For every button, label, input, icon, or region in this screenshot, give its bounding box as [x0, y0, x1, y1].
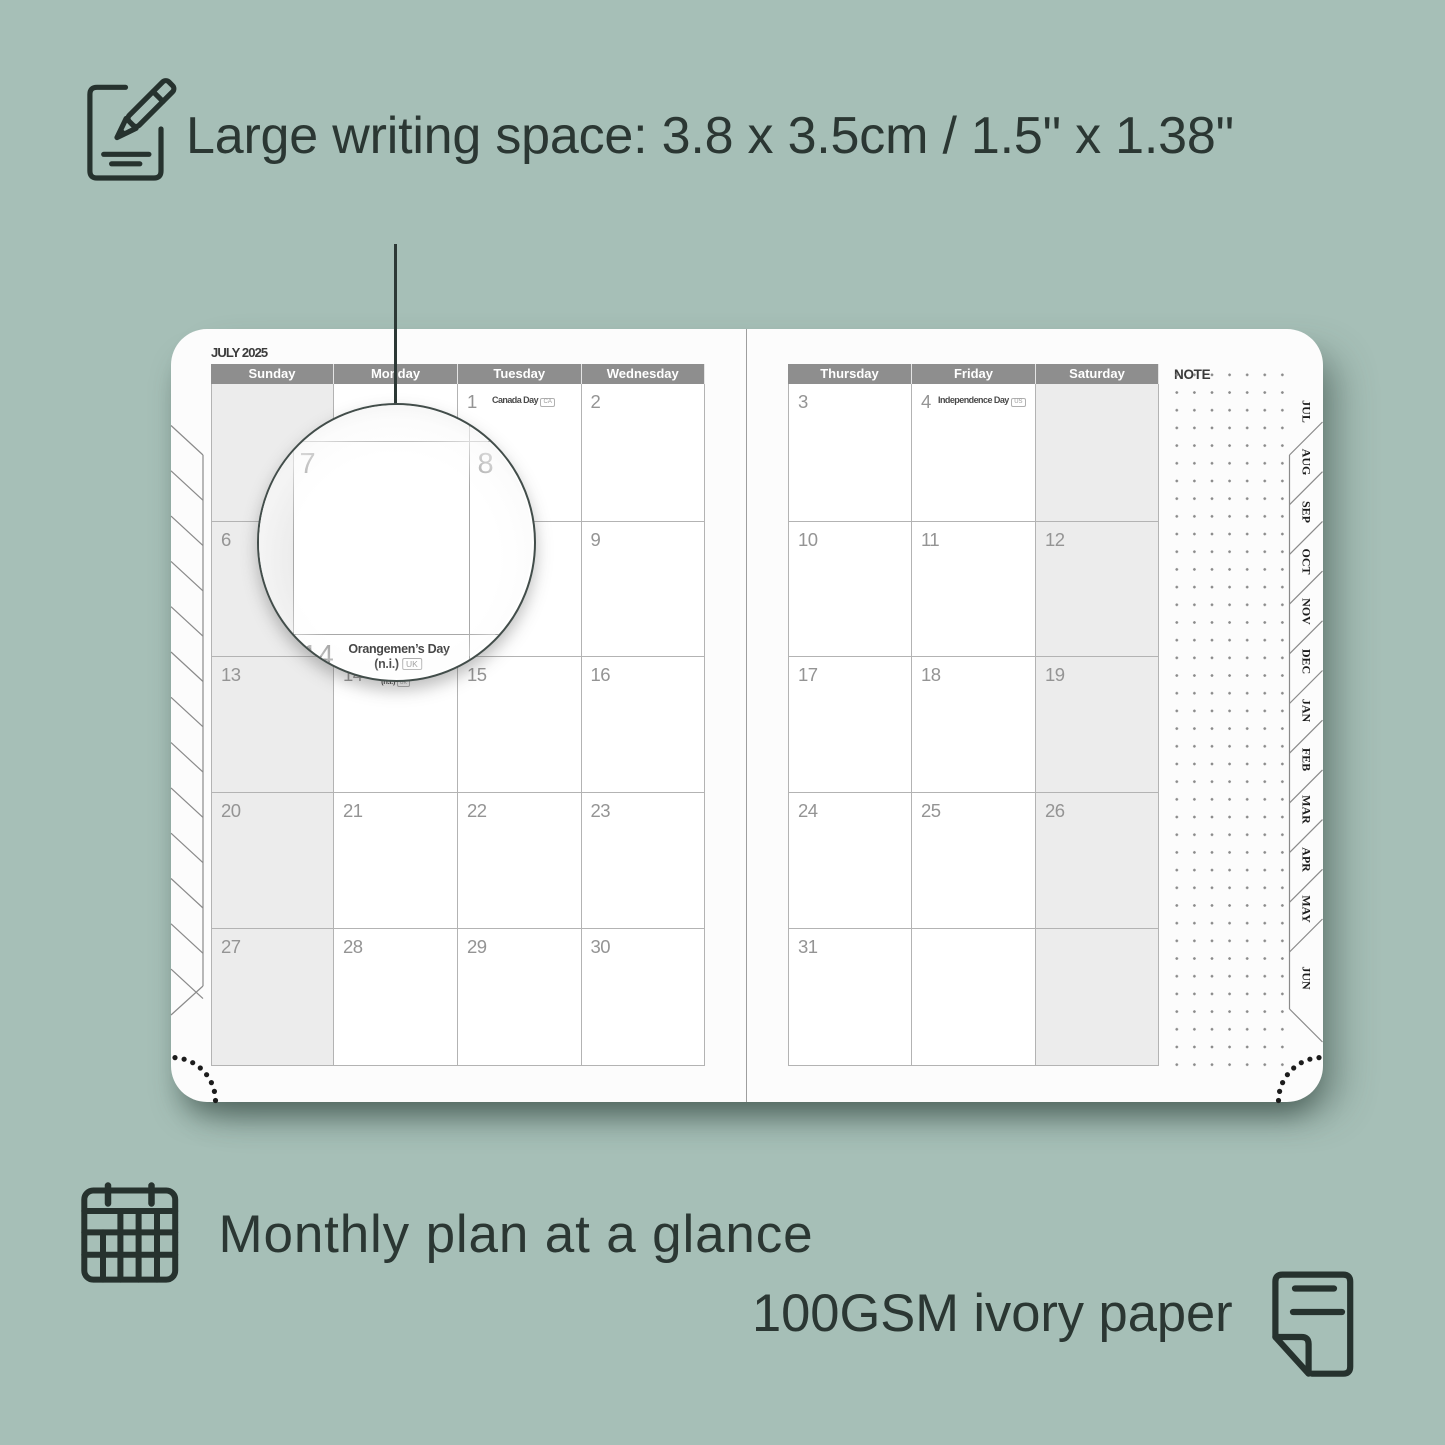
- svg-text:JAN: JAN: [1300, 699, 1314, 723]
- svg-text:JUN: JUN: [1300, 966, 1314, 990]
- svg-text:APR: APR: [1300, 847, 1314, 872]
- svg-text:SEP: SEP: [1300, 501, 1314, 523]
- svg-text:OCT: OCT: [1300, 548, 1314, 574]
- svg-text:NOV: NOV: [1300, 598, 1314, 625]
- svg-text:FEB: FEB: [1300, 748, 1314, 771]
- svg-text:JUL: JUL: [1300, 400, 1314, 423]
- svg-text:AUG: AUG: [1300, 449, 1314, 476]
- svg-text:MAR: MAR: [1300, 795, 1314, 824]
- svg-text:DEC: DEC: [1300, 649, 1314, 674]
- svg-text:MAY: MAY: [1300, 895, 1314, 923]
